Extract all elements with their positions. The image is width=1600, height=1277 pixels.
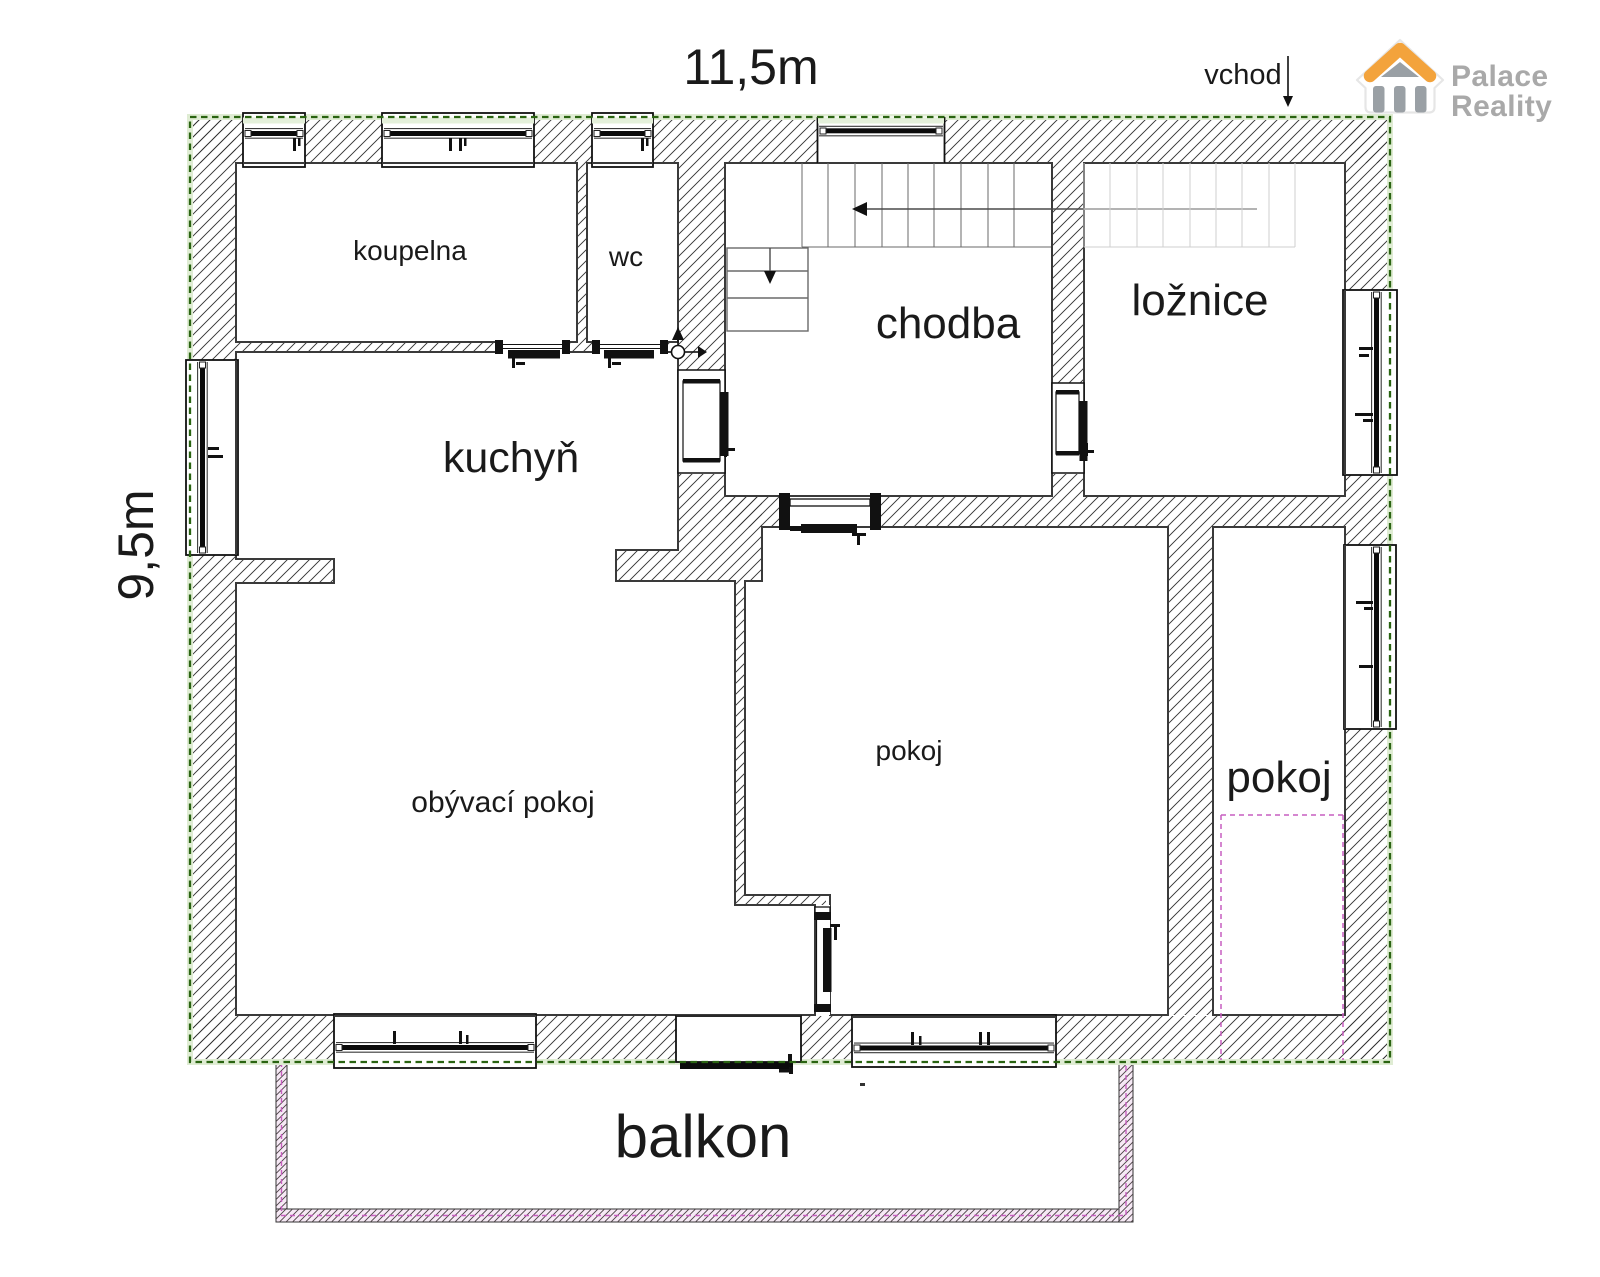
svg-text:obývací pokoj: obývací pokoj [411, 786, 594, 819]
svg-text:11,5m: 11,5m [683, 39, 818, 95]
svg-text:balkon: balkon [615, 1103, 792, 1170]
svg-text:pokoj: pokoj [1226, 753, 1331, 802]
svg-text:Reality: Reality [1451, 90, 1552, 123]
svg-text:vchod: vchod [1204, 59, 1281, 91]
svg-text:koupelna: koupelna [353, 235, 467, 266]
svg-text:pokoj: pokoj [876, 735, 943, 766]
svg-text:9,5m: 9,5m [108, 489, 164, 600]
svg-text:kuchyň: kuchyň [443, 434, 579, 482]
svg-text:Palace: Palace [1451, 60, 1548, 93]
svg-text:chodba: chodba [876, 299, 1021, 348]
svg-text:wc: wc [608, 241, 643, 272]
svg-text:ložnice: ložnice [1132, 276, 1269, 325]
